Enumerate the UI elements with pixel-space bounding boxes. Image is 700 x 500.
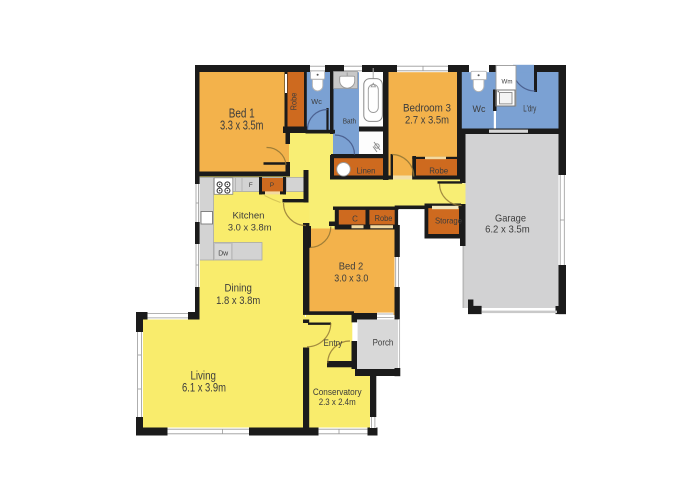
- svg-text:Wc: Wc: [473, 104, 486, 115]
- svg-text:3.0 x 3.8m: 3.0 x 3.8m: [228, 223, 272, 234]
- svg-text:Wm: Wm: [502, 79, 513, 86]
- svg-text:Robe: Robe: [290, 93, 299, 111]
- svg-text:2.3 x 2.4m: 2.3 x 2.4m: [319, 397, 356, 408]
- svg-text:F: F: [249, 182, 253, 189]
- svg-text:Bath: Bath: [343, 118, 356, 125]
- svg-text:Wc: Wc: [311, 97, 322, 106]
- svg-text:6.1 x 3.9m: 6.1 x 3.9m: [182, 381, 226, 395]
- svg-text:Dining: Dining: [225, 283, 252, 295]
- svg-text:Kitchen: Kitchen: [233, 211, 265, 221]
- svg-text:6.2 x 3.5m: 6.2 x 3.5m: [485, 224, 530, 236]
- svg-text:Porch: Porch: [373, 337, 394, 347]
- svg-text:Bed 2: Bed 2: [339, 261, 364, 273]
- svg-text:3.3 x 3.5m: 3.3 x 3.5m: [220, 119, 264, 133]
- svg-text:C: C: [352, 215, 358, 224]
- svg-text:Bedroom 3: Bedroom 3: [403, 103, 451, 115]
- svg-text:Robe: Robe: [429, 166, 448, 176]
- svg-text:1.8 x 3.8m: 1.8 x 3.8m: [216, 295, 260, 307]
- svg-text:Dw: Dw: [218, 249, 229, 258]
- svg-text:L'dry: L'dry: [523, 103, 536, 113]
- svg-text:Linen: Linen: [357, 166, 376, 176]
- svg-text:Entry: Entry: [324, 338, 343, 348]
- svg-text:Robe: Robe: [375, 214, 393, 223]
- svg-text:2.7 x 3.5m: 2.7 x 3.5m: [405, 115, 449, 127]
- svg-text:P: P: [270, 182, 274, 189]
- svg-text:Storage: Storage: [435, 216, 462, 226]
- svg-text:3.0 x 3.0: 3.0 x 3.0: [334, 273, 368, 285]
